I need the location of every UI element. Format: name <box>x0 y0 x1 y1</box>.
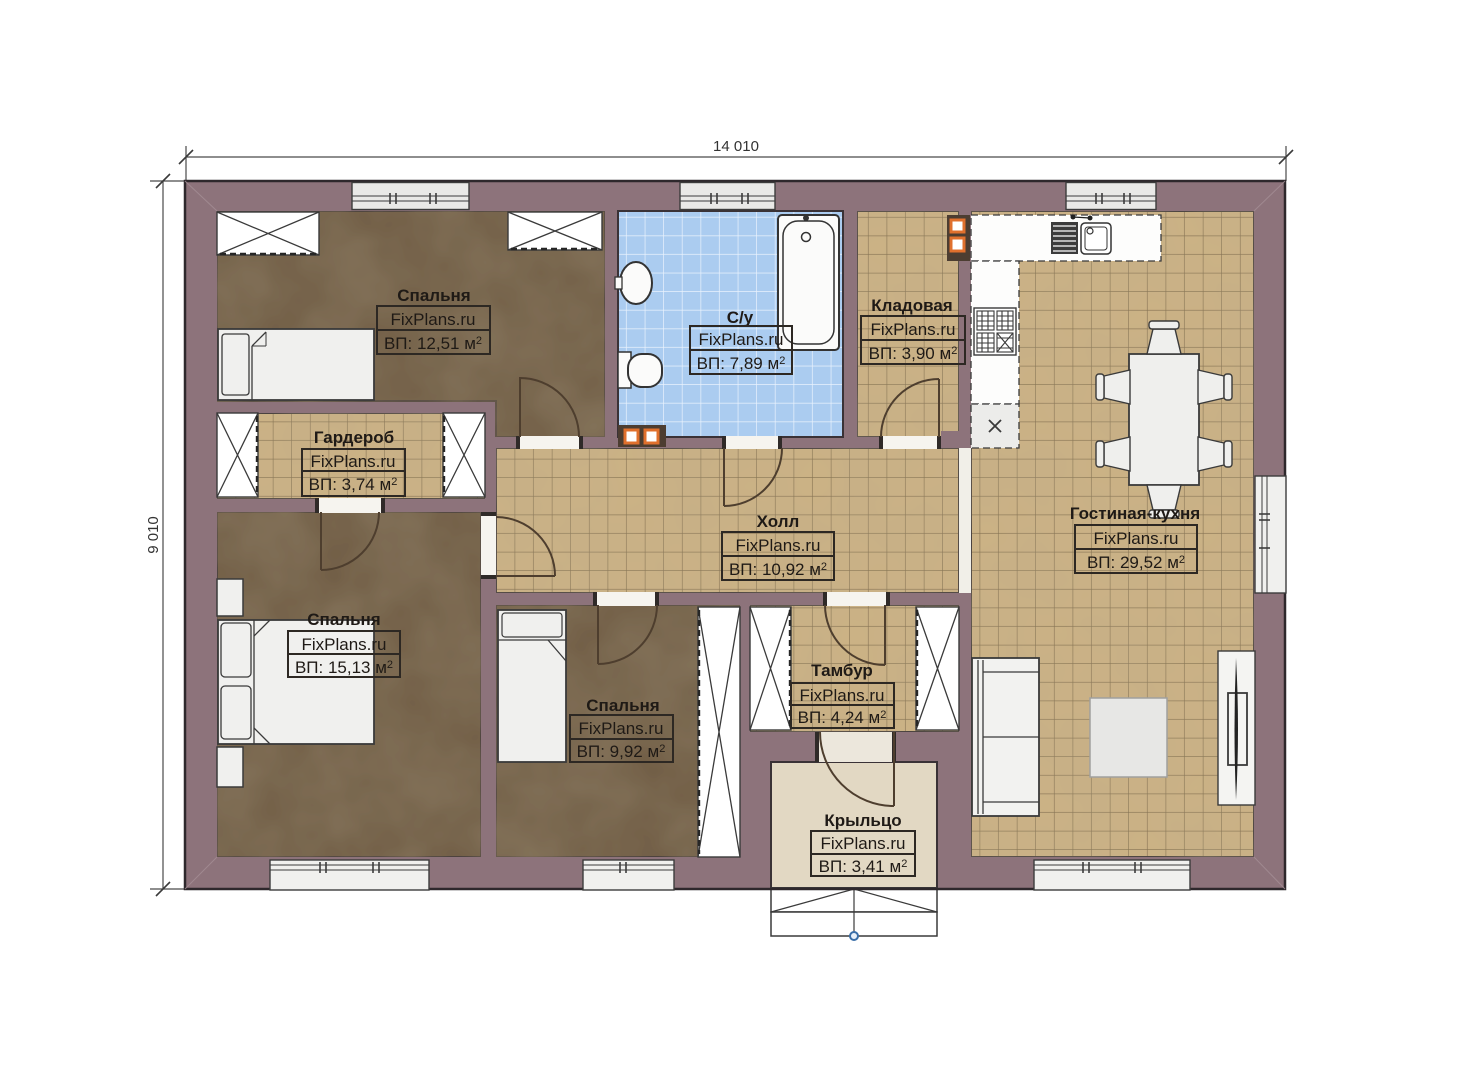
svg-text:ВП: 29,52 м2: ВП: 29,52 м2 <box>1087 553 1185 572</box>
svg-text:ВП: 3,74 м2: ВП: 3,74 м2 <box>309 475 398 494</box>
svg-text:Спальня: Спальня <box>307 610 380 629</box>
svg-text:FixPlans.ru: FixPlans.ru <box>698 330 783 349</box>
svg-text:FixPlans.ru: FixPlans.ru <box>301 635 386 654</box>
svg-text:ВП: 7,89 м2: ВП: 7,89 м2 <box>697 354 786 373</box>
svg-text:FixPlans.ru: FixPlans.ru <box>820 834 905 853</box>
svg-text:С/у: С/у <box>727 308 754 327</box>
svg-text:ВП: 3,41 м2: ВП: 3,41 м2 <box>819 857 908 876</box>
svg-text:FixPlans.ru: FixPlans.ru <box>578 719 663 738</box>
svg-text:FixPlans.ru: FixPlans.ru <box>799 686 884 705</box>
svg-text:ВП: 4,24 м2: ВП: 4,24 м2 <box>798 708 887 727</box>
svg-text:Холл: Холл <box>757 512 800 531</box>
svg-text:ВП: 3,90 м2: ВП: 3,90 м2 <box>869 344 958 363</box>
svg-text:Спальня: Спальня <box>397 286 470 305</box>
svg-text:Тамбур: Тамбур <box>811 661 873 680</box>
svg-text:Гостиная-кухня: Гостиная-кухня <box>1070 504 1200 523</box>
svg-text:9 010: 9 010 <box>145 516 162 554</box>
svg-text:FixPlans.ru: FixPlans.ru <box>1093 529 1178 548</box>
svg-text:ВП: 12,51 м2: ВП: 12,51 м2 <box>384 334 482 353</box>
svg-text:FixPlans.ru: FixPlans.ru <box>735 536 820 555</box>
svg-text:ВП: 10,92 м2: ВП: 10,92 м2 <box>729 560 827 579</box>
svg-text:ВП: 9,92 м2: ВП: 9,92 м2 <box>577 742 666 761</box>
svg-text:FixPlans.ru: FixPlans.ru <box>310 452 395 471</box>
svg-text:Спальня: Спальня <box>586 696 659 715</box>
svg-text:Крыльцо: Крыльцо <box>824 811 901 830</box>
svg-text:ВП: 15,13 м2: ВП: 15,13 м2 <box>295 658 393 677</box>
svg-text:FixPlans.ru: FixPlans.ru <box>870 320 955 339</box>
svg-text:Кладовая: Кладовая <box>871 296 952 315</box>
svg-text:14 010: 14 010 <box>713 138 759 155</box>
svg-text:Гардероб: Гардероб <box>314 428 394 447</box>
svg-text:FixPlans.ru: FixPlans.ru <box>390 310 475 329</box>
